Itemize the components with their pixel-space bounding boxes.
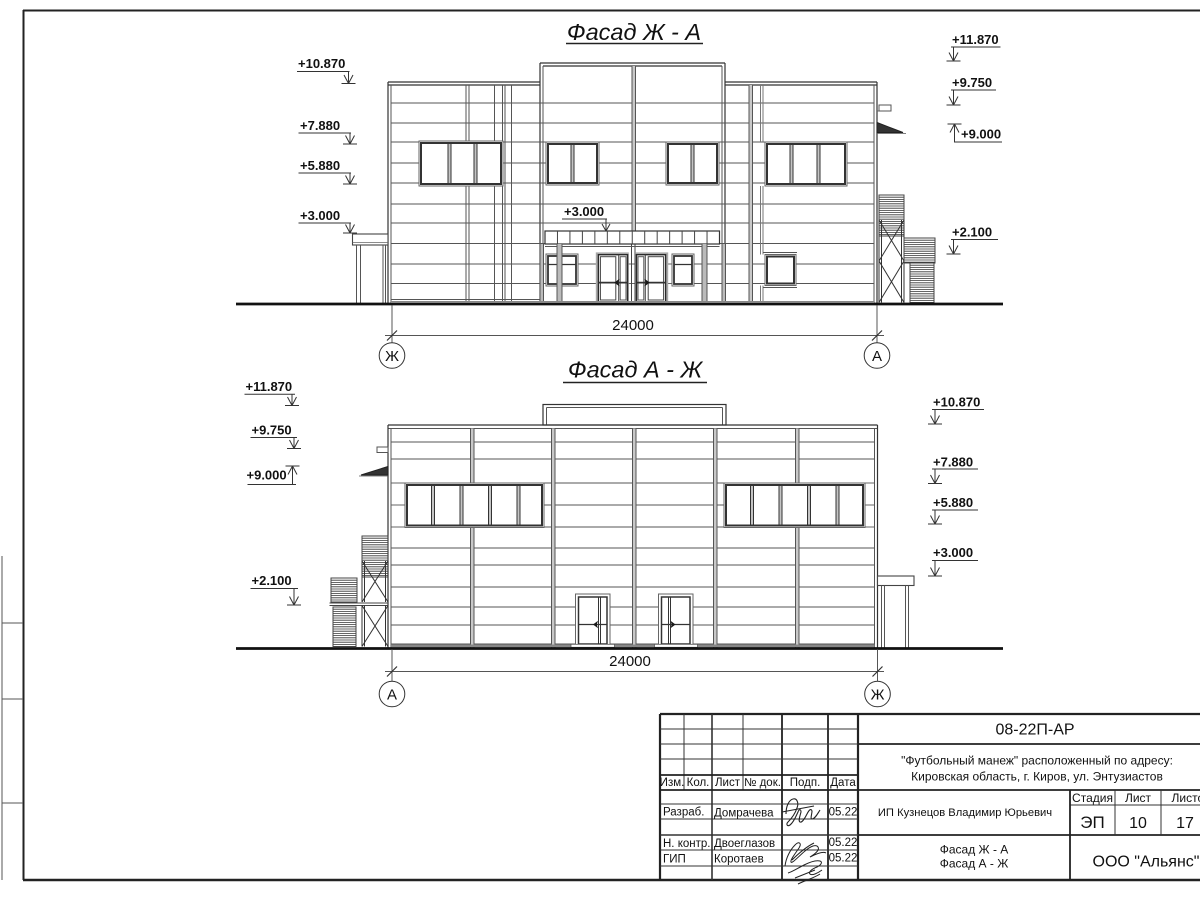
svg-text:Коротаев: Коротаев <box>714 854 764 866</box>
svg-text:Листов: Листов <box>1172 791 1200 805</box>
svg-text:05.22: 05.22 <box>829 853 858 865</box>
svg-text:А: А <box>387 686 397 703</box>
svg-text:Разраб.: Разраб. <box>663 807 704 819</box>
svg-text:+11.870: +11.870 <box>952 32 999 47</box>
svg-text:+3.000: +3.000 <box>933 545 973 560</box>
svg-text:+5.880: +5.880 <box>933 495 973 510</box>
svg-text:+11.870: +11.870 <box>246 379 293 394</box>
svg-text:Домрачева: Домрачева <box>714 808 774 820</box>
svg-text:№ док.: № док. <box>744 777 781 789</box>
svg-text:+7.880: +7.880 <box>933 455 973 470</box>
svg-text:+3.000: +3.000 <box>564 204 604 219</box>
svg-text:+9.000: +9.000 <box>961 127 1001 142</box>
svg-text:+10.870: +10.870 <box>298 56 345 71</box>
svg-text:+2.100: +2.100 <box>252 573 292 588</box>
svg-text:+7.880: +7.880 <box>300 118 340 133</box>
svg-text:Лист: Лист <box>715 777 741 789</box>
svg-text:Фасад Ж - А: Фасад Ж - А <box>567 19 701 45</box>
svg-text:Кол.: Кол. <box>687 777 710 789</box>
svg-text:+3.000: +3.000 <box>300 208 340 223</box>
svg-text:ООО "Альянс": ООО "Альянс" <box>1093 854 1200 871</box>
svg-text:+5.880: +5.880 <box>300 158 340 173</box>
svg-text:Фасад А - Ж: Фасад А - Ж <box>940 857 1009 871</box>
svg-text:Подп.: Подп. <box>790 777 821 789</box>
svg-text:"Футбольный манеж" расположенн: "Футбольный манеж" расположенный по адре… <box>901 754 1173 768</box>
svg-text:Ж: Ж <box>385 348 399 365</box>
svg-text:Кировская область, г. Киров, у: Кировская область, г. Киров, ул. Энтузиа… <box>911 770 1163 784</box>
svg-text:+9.750: +9.750 <box>252 423 292 438</box>
svg-text:ИП Кузнецов Владимир Юрьевич: ИП Кузнецов Владимир Юрьевич <box>878 807 1052 819</box>
svg-text:+10.870: +10.870 <box>933 395 980 410</box>
svg-text:ГИП: ГИП <box>663 854 686 866</box>
svg-text:Дата: Дата <box>830 777 856 789</box>
svg-text:24000: 24000 <box>612 317 654 334</box>
svg-text:Двоеглазов: Двоеглазов <box>714 838 775 850</box>
svg-text:Фасад Ж - А: Фасад Ж - А <box>940 843 1009 857</box>
svg-text:ЭП: ЭП <box>1080 813 1104 832</box>
svg-text:05.22: 05.22 <box>829 807 858 819</box>
svg-text:08-22П-АР: 08-22П-АР <box>995 722 1074 739</box>
svg-text:17: 17 <box>1176 815 1194 832</box>
svg-text:Н. контр.: Н. контр. <box>663 838 710 850</box>
svg-text:А: А <box>872 348 882 365</box>
svg-text:Фасад А - Ж: Фасад А - Ж <box>568 357 704 383</box>
svg-text:10: 10 <box>1129 815 1147 832</box>
svg-text:+2.100: +2.100 <box>952 225 992 240</box>
svg-text:Ж: Ж <box>871 686 885 703</box>
svg-text:05.22: 05.22 <box>829 837 858 849</box>
svg-text:+9.000: +9.000 <box>247 468 287 483</box>
svg-text:Лист: Лист <box>1125 791 1152 805</box>
svg-text:Стадия: Стадия <box>1072 791 1113 805</box>
svg-text:Изм.: Изм. <box>660 777 685 789</box>
svg-text:24000: 24000 <box>609 653 651 670</box>
svg-text:+9.750: +9.750 <box>952 75 992 90</box>
